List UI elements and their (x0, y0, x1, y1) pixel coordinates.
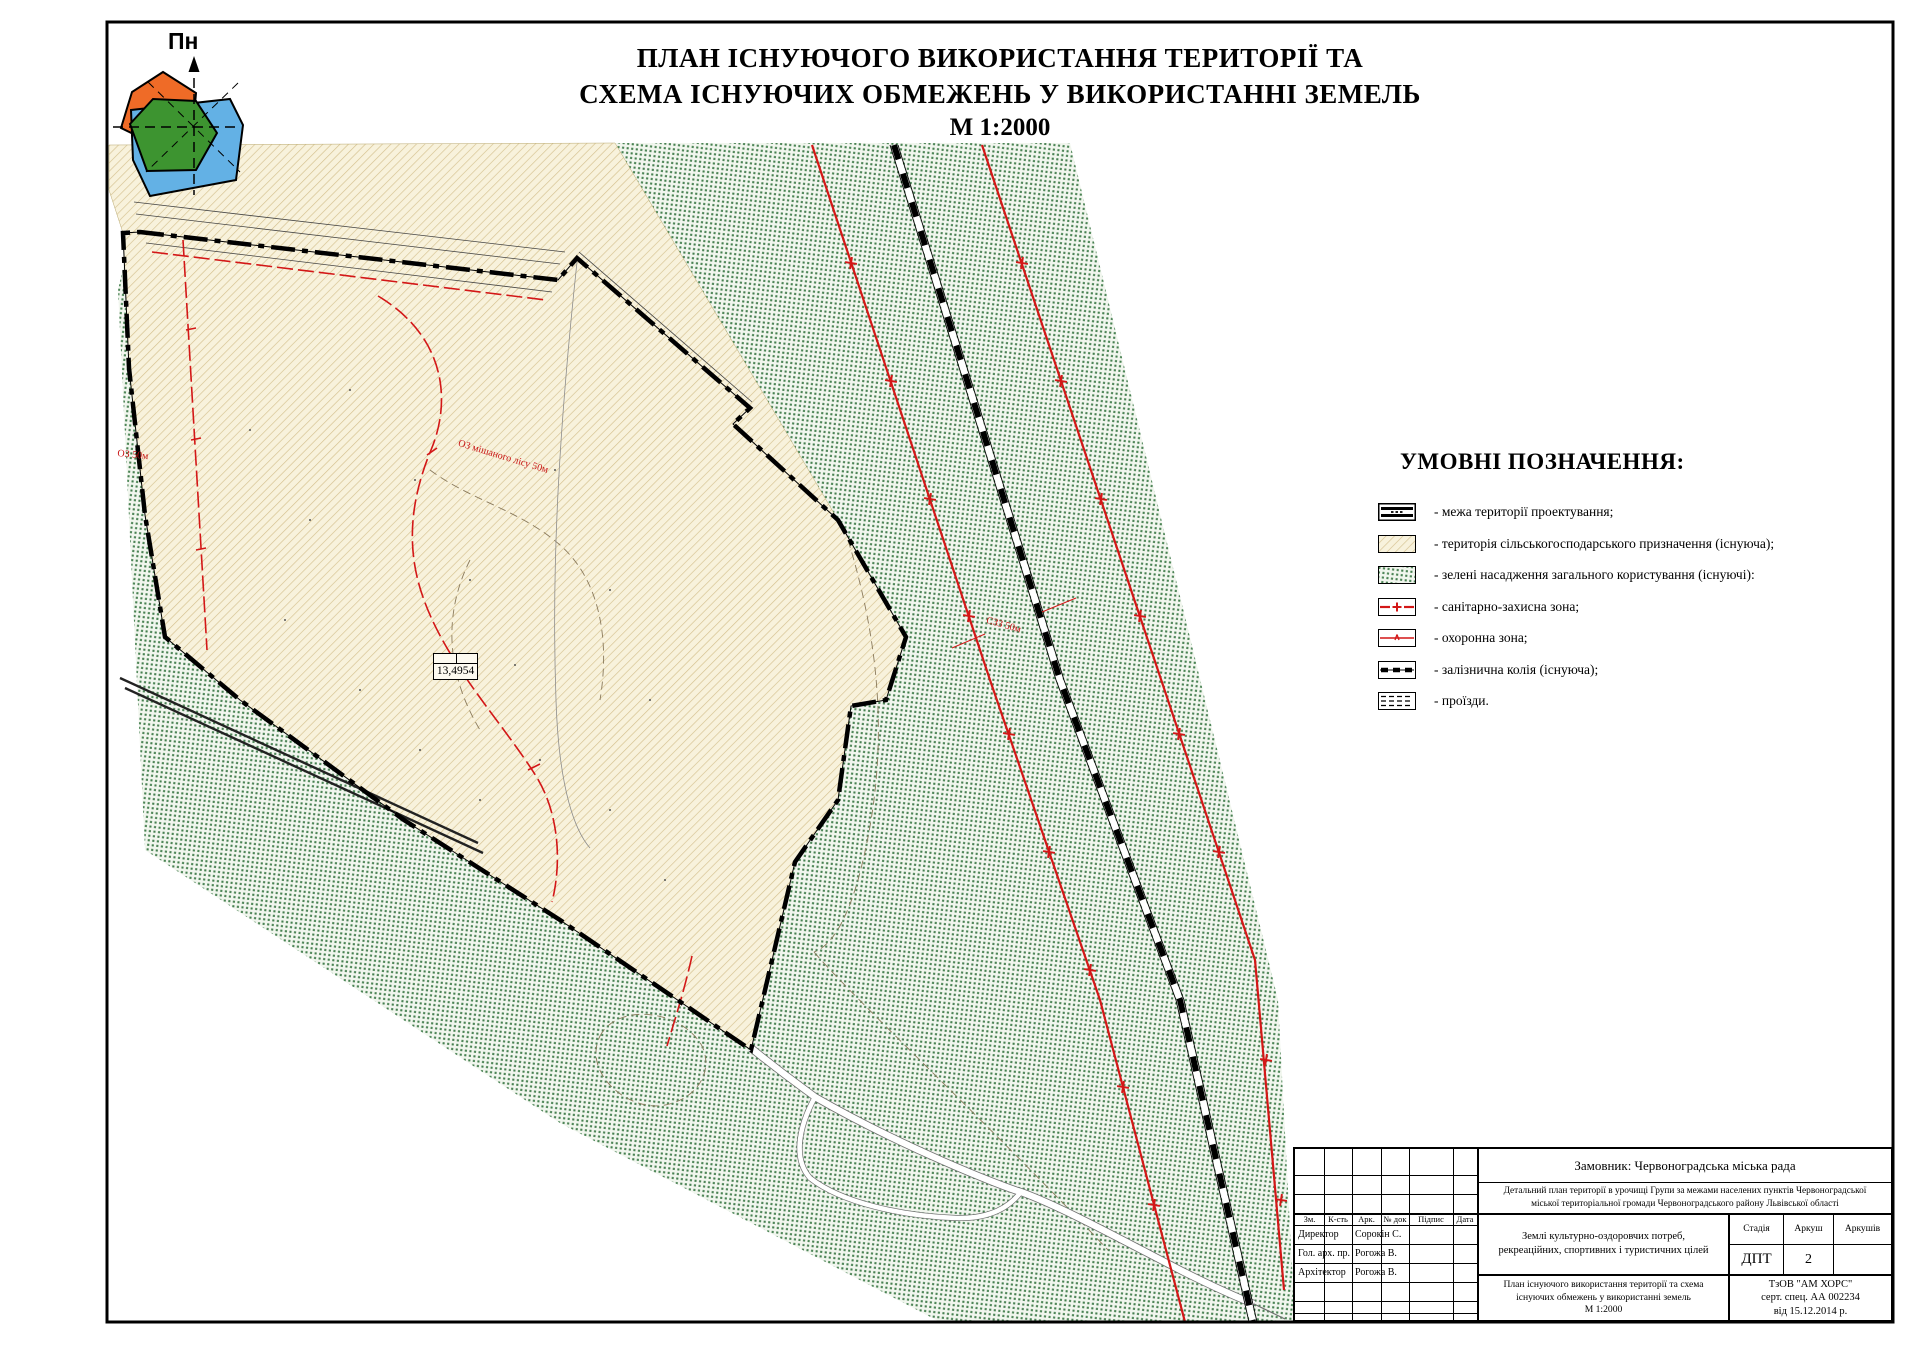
tb-organization: ТзОВ "АМ ХОРС" серт. спец. АА 002234 від… (1730, 1276, 1891, 1320)
legend-item-protective-zone: - охоронна зона; (1378, 629, 1774, 647)
tb-header-zm: Зм. (1295, 1214, 1324, 1225)
legend-item-railway: - залізнична колія (існуюча); (1378, 661, 1774, 679)
tb-project-line-1: Детальний план території в урочищі Групи… (1483, 1185, 1887, 1198)
legend-label: - проїзди. (1434, 693, 1489, 709)
tb-header-kst: К-сть (1324, 1214, 1352, 1225)
plan-sheet: ПЛАН ІСНУЮЧОГО ВИКОРИСТАННЯ ТЕРИТОРІЇ ТА… (0, 0, 1920, 1358)
legend-label: - зелені насадження загального користува… (1434, 567, 1755, 583)
legend-swatch-driveways-icon (1378, 692, 1416, 710)
tb-land-use: Землі культурно-оздоровчих потреб, рекре… (1481, 1215, 1726, 1273)
tb-sheet-title: План існуючого використання території та… (1481, 1276, 1726, 1320)
tb-sheet-title-line-3: М 1:2000 (1481, 1304, 1726, 1317)
legend-item-green-planting: - зелені насадження загального користува… (1378, 566, 1774, 584)
tb-signer-name: Рогожа В. (1355, 1263, 1409, 1282)
tb-signer-name: Сорокін С. (1355, 1225, 1409, 1244)
legend-swatch-boundary-icon (1378, 503, 1416, 521)
tb-stage-value: ДПТ (1730, 1245, 1783, 1274)
tb-customer: Замовник: Червоноградська міська рада (1479, 1149, 1891, 1182)
legend-item-driveways: - проїзди. (1378, 692, 1774, 710)
north-label: Пн (168, 28, 198, 55)
legend-swatch-green-planting-icon (1378, 566, 1416, 584)
parcel-area-label-top (434, 654, 477, 664)
legend-label: - санітарно-захисна зона; (1434, 599, 1579, 615)
legend-item-boundary: - межа території проектування; (1378, 503, 1774, 521)
legend-swatch-agricultural-icon (1378, 535, 1416, 553)
title-block: Зм. К-сть Арк. № док Підпис Дата Директо… (1293, 1147, 1893, 1322)
tb-header-date: Дата (1453, 1214, 1477, 1225)
tb-sheet-title-line-2: існуючих обмежень у використанні земель (1481, 1292, 1726, 1305)
tb-sheets-label: Аркушів (1834, 1213, 1891, 1244)
tb-signer-role: Архітектор (1298, 1263, 1352, 1282)
tb-signer-role: Директор (1298, 1225, 1352, 1244)
title-line-2: СХЕМА ІСНУЮЧИХ ОБМЕЖЕНЬ У ВИКОРИСТАННІ З… (370, 76, 1630, 112)
tb-land-use-line-1: Землі культурно-оздоровчих потреб, (1481, 1230, 1726, 1244)
title-scale: М 1:2000 (370, 112, 1630, 144)
tb-project-line-2: міської територіальної громади Червоногр… (1483, 1198, 1887, 1211)
tb-signer-name: Рогожа В. (1355, 1244, 1409, 1263)
legend-swatch-sanitary-zone-icon (1378, 598, 1416, 616)
parcel-area-label: 13,4954 (433, 653, 478, 680)
legend-label: - залізнична колія (існуюча); (1434, 662, 1598, 678)
tb-header-ark: Арк. (1352, 1214, 1381, 1225)
legend: - межа території проектування; - територ… (1378, 503, 1774, 724)
tb-header-signature: Підпис (1409, 1214, 1453, 1225)
drawing-title: ПЛАН ІСНУЮЧОГО ВИКОРИСТАННЯ ТЕРИТОРІЇ ТА… (370, 40, 1630, 144)
legend-label: - охоронна зона; (1434, 630, 1528, 646)
tb-header-doc: № док (1381, 1214, 1409, 1225)
tb-land-use-line-2: рекреаційних, спортивних і туристичних ц… (1481, 1244, 1726, 1258)
tb-org-line-1: ТзОВ "АМ ХОРС" (1730, 1278, 1891, 1292)
legend-label: - територія сільськогосподарського призн… (1434, 536, 1774, 552)
legend-label: - межа території проектування; (1434, 504, 1613, 520)
tb-project-description: Детальний план території в урочищі Групи… (1483, 1185, 1887, 1213)
legend-swatch-railway-icon (1378, 661, 1416, 679)
legend-item-sanitary-zone: - санітарно-захисна зона; (1378, 598, 1774, 616)
legend-item-agricultural: - територія сільськогосподарського призн… (1378, 535, 1774, 553)
title-line-1: ПЛАН ІСНУЮЧОГО ВИКОРИСТАННЯ ТЕРИТОРІЇ ТА (370, 40, 1630, 76)
tb-sheet-value: 2 (1784, 1245, 1833, 1274)
tb-sheet-label: Аркуш (1784, 1213, 1833, 1244)
legend-heading: УМОВНІ ПОЗНАЧЕННЯ: (1400, 449, 1685, 475)
parcel-area-value: 13,4954 (434, 664, 477, 678)
tb-org-line-3: від 15.12.2014 р. (1730, 1305, 1891, 1319)
legend-swatch-protective-zone-icon (1378, 629, 1416, 647)
tb-signer-role: Гол. арх. пр. (1298, 1244, 1352, 1263)
tb-stage-label: Стадія (1730, 1213, 1783, 1244)
tb-sheets-value (1834, 1245, 1891, 1274)
tb-org-line-2: серт. спец. АА 002234 (1730, 1291, 1891, 1305)
tb-sheet-title-line-1: План існуючого використання території та… (1481, 1279, 1726, 1292)
